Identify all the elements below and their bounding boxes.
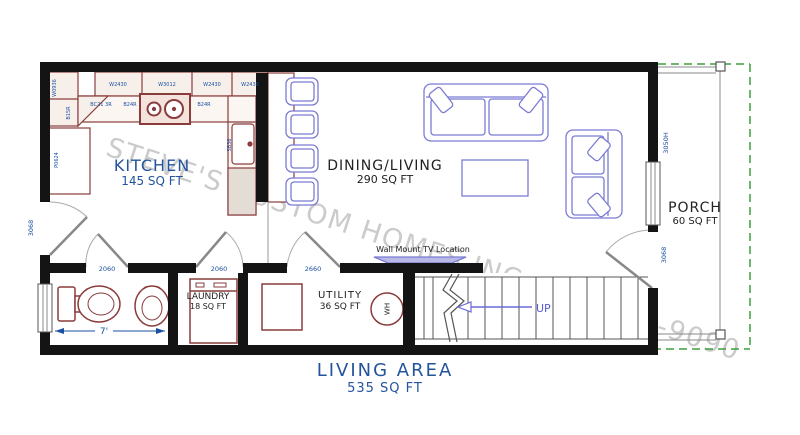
- burner-dot: [153, 108, 156, 111]
- dim-arrow-right: [156, 328, 165, 334]
- laundry-area: 18 SQ FT: [177, 302, 239, 311]
- stairs: UP: [415, 273, 648, 345]
- wall-right-lower: [648, 288, 658, 355]
- cabinet-label: W2430: [109, 82, 127, 88]
- cabinet-label: W0936: [52, 79, 58, 97]
- cabinet-label: B24R: [197, 102, 211, 108]
- cabinet-label: B15R: [66, 106, 72, 120]
- living-window-label: 3050H: [662, 132, 670, 154]
- utility-area: 36 SQ FT: [303, 302, 377, 312]
- wall-left-mid: [40, 255, 50, 284]
- toilet: [58, 286, 120, 322]
- wall-interior-3: [243, 263, 287, 273]
- bath-door-arc: [86, 234, 98, 267]
- utility-name: UTILITY: [303, 290, 377, 302]
- cabinet-label: BC21 3R: [90, 102, 112, 108]
- chair-inner: [291, 115, 314, 134]
- toilet-tank: [58, 287, 75, 321]
- laundry-name: LAUNDRY: [177, 292, 239, 302]
- utility-door-arc: [287, 232, 305, 267]
- sofa-right: [566, 130, 622, 218]
- cabinet-label: SB36: [227, 139, 233, 152]
- wall-utility-stairs: [403, 273, 415, 345]
- toilet-bowl-inner: [88, 293, 114, 315]
- washer-knob: [214, 283, 226, 287]
- dining-title: DINING/LIVING 290 SQ FT: [322, 158, 448, 187]
- porch-door-arc: [606, 230, 652, 252]
- sink-basin-inner: [142, 296, 162, 320]
- utility-door-label: 2660: [305, 265, 322, 273]
- cabinet-label: B24R: [123, 102, 137, 108]
- utility-title: UTILITY 36 SQ FT: [303, 290, 377, 312]
- pedestal-sink: [135, 286, 169, 326]
- plan-title: LIVING AREA 535 SQ FT: [295, 361, 475, 397]
- tv-icon: [374, 257, 466, 263]
- porch-post-bottom: [716, 330, 725, 339]
- utility-door-leaf: [305, 232, 340, 267]
- laundry-door-label: 2060: [211, 265, 228, 273]
- dim-arrow-left: [55, 328, 64, 334]
- bath-door-leaf: [98, 234, 128, 267]
- living-area-sqft: 535 SQ FT: [295, 382, 475, 397]
- kitchen-name: KITCHEN: [92, 157, 212, 175]
- porch-area: 60 SQ FT: [660, 216, 730, 228]
- hvac-unit: [262, 284, 302, 330]
- bath-door-label: 2060: [99, 265, 116, 273]
- porch-name: PORCH: [660, 200, 730, 216]
- chair-inner: [291, 149, 314, 168]
- chair-inner: [291, 82, 314, 101]
- wall-bottom: [40, 345, 658, 355]
- coffee-table: [462, 160, 528, 196]
- living-area-label: LIVING AREA: [295, 361, 475, 382]
- laundry-door-leaf: [196, 232, 226, 267]
- cabinet-label: P0624: [54, 152, 60, 168]
- cabinet-label: W3012: [158, 82, 176, 88]
- sofa-top: [424, 84, 548, 141]
- bath-dimension: 7': [55, 327, 165, 337]
- entry-door-label: 3068: [27, 220, 35, 237]
- faucet-icon: [248, 142, 252, 146]
- wall-peninsula: [256, 73, 268, 202]
- wall-laundry-utility: [238, 273, 248, 345]
- laundry-title: LAUNDRY 18 SQ FT: [177, 292, 239, 312]
- wall-interior-1: [50, 263, 86, 273]
- wall-top: [40, 62, 658, 72]
- porch-post-top: [716, 62, 725, 71]
- wall-right-mid: [648, 225, 658, 232]
- washer-knob: [196, 283, 204, 287]
- kitchen-title: KITCHEN 145 SQ FT: [92, 157, 212, 189]
- cabinet-label: W2430: [203, 82, 221, 88]
- laundry-door-arc: [226, 232, 243, 267]
- porch-title: PORCH 60 SQ FT: [660, 200, 730, 228]
- wall-interior-2: [128, 263, 196, 273]
- floor-plan: STEVE'S CUSTOM HOMES,INC. 207-713-9090: [0, 0, 800, 435]
- wall-tv: [340, 263, 483, 273]
- dining-area: 290 SQ FT: [322, 174, 448, 187]
- wall-left-upper: [40, 62, 50, 202]
- chair-inner: [291, 182, 314, 201]
- stairs-area: [415, 273, 648, 345]
- up-label: UP: [536, 302, 551, 315]
- porch-door-label: 3068: [660, 247, 668, 264]
- dim-label: 7': [100, 327, 108, 337]
- living-window: [646, 162, 660, 225]
- dining-name: DINING/LIVING: [322, 158, 448, 174]
- counter-section: [228, 168, 256, 215]
- entry-door-leaf: [50, 217, 87, 255]
- burner-dot: [173, 108, 176, 111]
- kitchen-area: 145 SQ FT: [92, 175, 212, 189]
- bath-window: [38, 284, 52, 332]
- water-heater-label: WH: [384, 303, 392, 315]
- entry-door-arc: [50, 202, 87, 217]
- wall-right-upper: [648, 62, 658, 162]
- tv-mount-label: Wall Mount TV Location: [368, 245, 478, 254]
- cabinet-label: W2430: [241, 82, 259, 88]
